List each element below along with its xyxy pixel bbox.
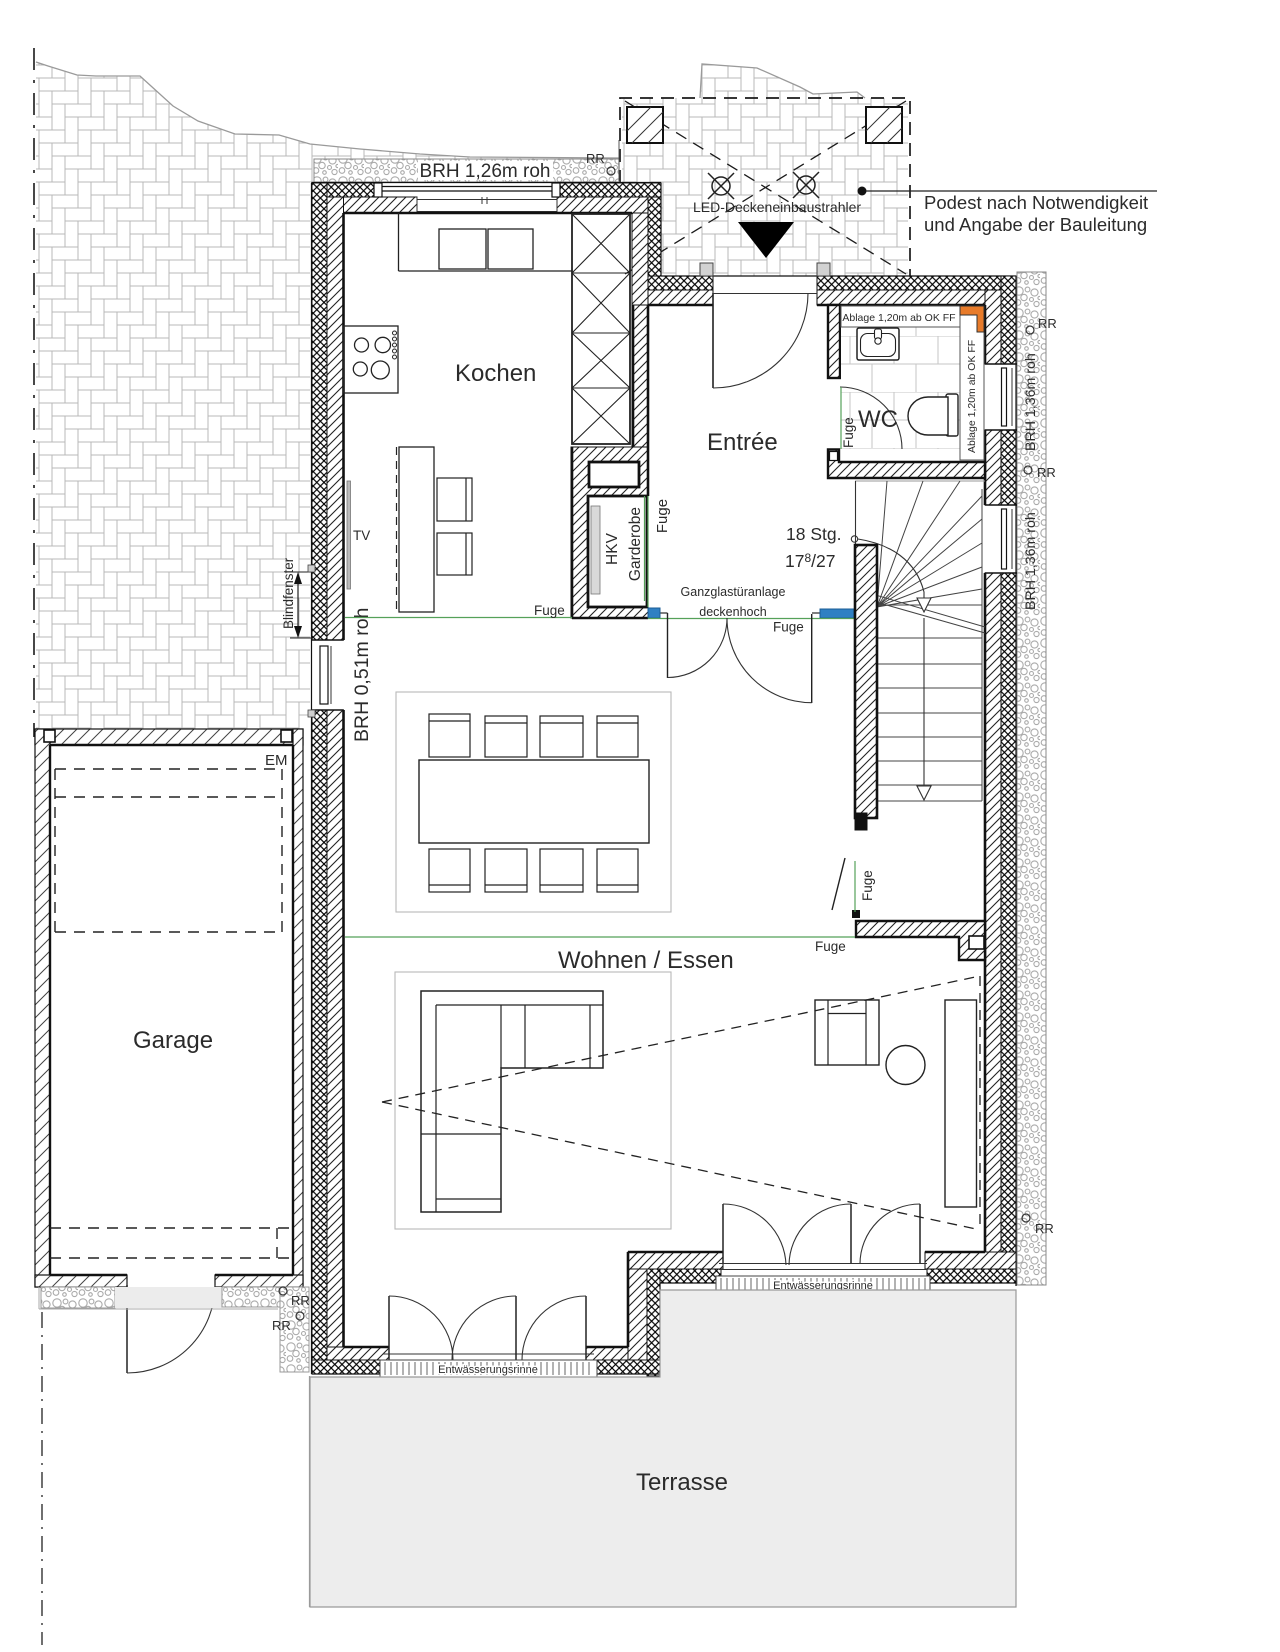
svg-text:BRH 1,36m roh: BRH 1,36m roh — [1023, 353, 1039, 451]
svg-text:RR: RR — [586, 151, 605, 166]
svg-text:Ablage 1,20m ab OK FF: Ablage 1,20m ab OK FF — [966, 340, 978, 453]
svg-text:18 Stg.: 18 Stg. — [786, 524, 841, 544]
svg-text:LED-Deckeneinbaustrahler: LED-Deckeneinbaustrahler — [693, 199, 861, 215]
svg-text:Garage: Garage — [133, 1027, 213, 1054]
svg-text:RR: RR — [1035, 1221, 1054, 1236]
svg-text:Entwässerungsrinne: Entwässerungsrinne — [438, 1364, 538, 1376]
svg-text:deckenhoch: deckenhoch — [699, 605, 766, 619]
svg-text:RR: RR — [1038, 316, 1057, 331]
svg-text:HKV: HKV — [604, 532, 621, 565]
svg-text:Fuge: Fuge — [841, 417, 856, 448]
svg-text:Fuge: Fuge — [773, 620, 804, 635]
svg-text:Fuge: Fuge — [654, 499, 671, 533]
svg-text:Podest nach Notwendigkeit: Podest nach Notwendigkeit — [924, 192, 1148, 213]
svg-text:BRH 0,51m roh: BRH 0,51m roh — [351, 608, 373, 742]
svg-text:Blindfenster: Blindfenster — [281, 557, 296, 629]
svg-text:BRH 1,26m roh: BRH 1,26m roh — [420, 161, 551, 182]
svg-text:Terrasse: Terrasse — [636, 1469, 728, 1496]
svg-text:WC: WC — [858, 406, 898, 433]
svg-text:TV: TV — [353, 528, 370, 543]
svg-text:RR: RR — [272, 1318, 291, 1333]
svg-text:178/27: 178/27 — [785, 551, 835, 571]
svg-text:Fuge: Fuge — [815, 939, 846, 954]
svg-text:BRH 1,36m roh: BRH 1,36m roh — [1023, 512, 1039, 610]
svg-text:RR: RR — [1037, 465, 1056, 480]
svg-text:Wohnen / Essen: Wohnen / Essen — [558, 947, 734, 974]
svg-text:Fuge: Fuge — [534, 603, 565, 618]
svg-text:Garderobe: Garderobe — [627, 507, 644, 581]
svg-text:Kochen: Kochen — [455, 360, 536, 387]
svg-text:Ablage 1,20m ab OK FF: Ablage 1,20m ab OK FF — [842, 312, 955, 324]
svg-text:und Angabe der Bauleitung: und Angabe der Bauleitung — [924, 214, 1147, 235]
svg-text:Fuge: Fuge — [860, 870, 875, 901]
svg-text:RR: RR — [291, 1293, 310, 1308]
svg-text:Ganzglastüranlage: Ganzglastüranlage — [681, 585, 786, 599]
svg-text:EM: EM — [265, 752, 288, 769]
svg-text:Entrée: Entrée — [707, 429, 778, 456]
